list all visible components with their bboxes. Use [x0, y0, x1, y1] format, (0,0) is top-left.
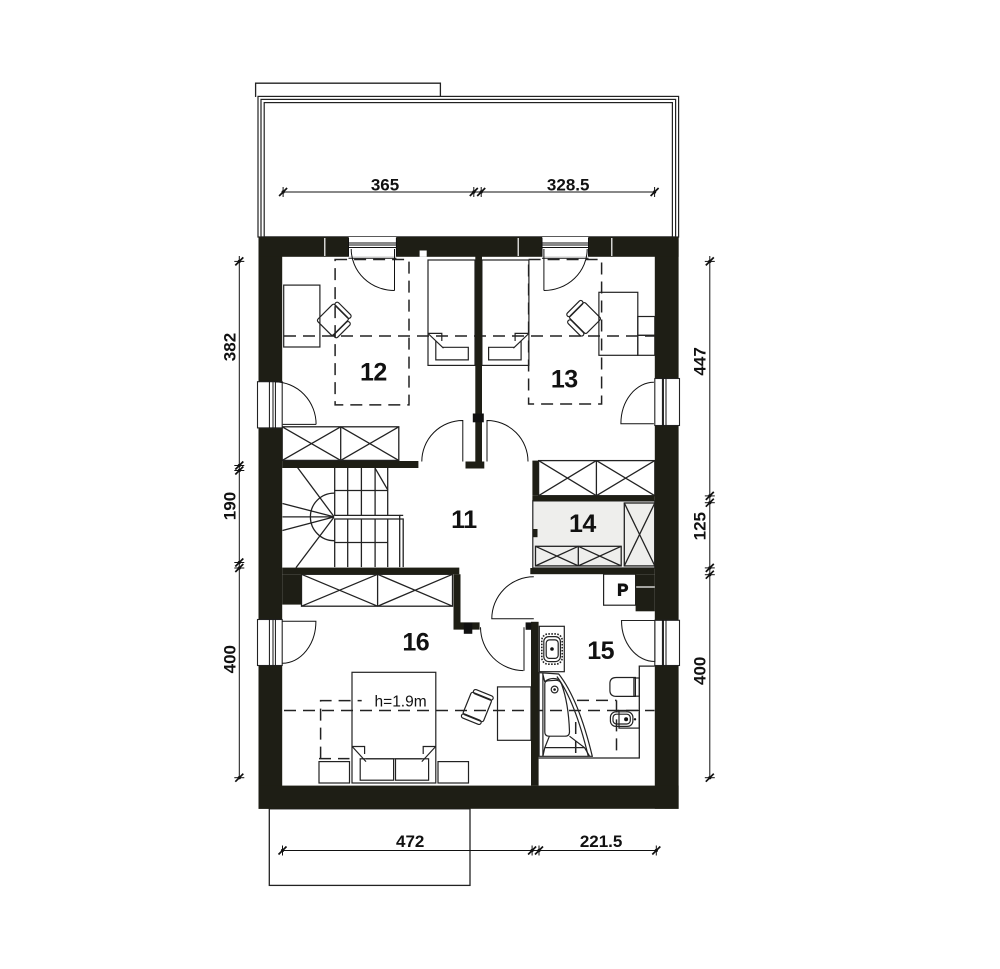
svg-text:125: 125 — [691, 512, 710, 540]
svg-text:h=1.9m: h=1.9m — [375, 693, 427, 710]
svg-text:P: P — [617, 581, 628, 599]
svg-text:13: 13 — [551, 366, 578, 394]
svg-text:221.5: 221.5 — [580, 832, 623, 851]
svg-text:11: 11 — [451, 506, 477, 534]
svg-text:190: 190 — [221, 492, 240, 520]
svg-text:447: 447 — [691, 347, 710, 375]
svg-text:328.5: 328.5 — [547, 176, 590, 195]
svg-text:472: 472 — [396, 832, 424, 851]
svg-text:12: 12 — [360, 359, 387, 387]
svg-text:16: 16 — [402, 629, 429, 657]
svg-text:365: 365 — [371, 176, 399, 195]
svg-text:400: 400 — [691, 657, 710, 685]
svg-text:382: 382 — [221, 333, 240, 361]
svg-text:400: 400 — [221, 645, 240, 673]
svg-text:14: 14 — [569, 510, 596, 538]
svg-text:15: 15 — [587, 637, 614, 665]
